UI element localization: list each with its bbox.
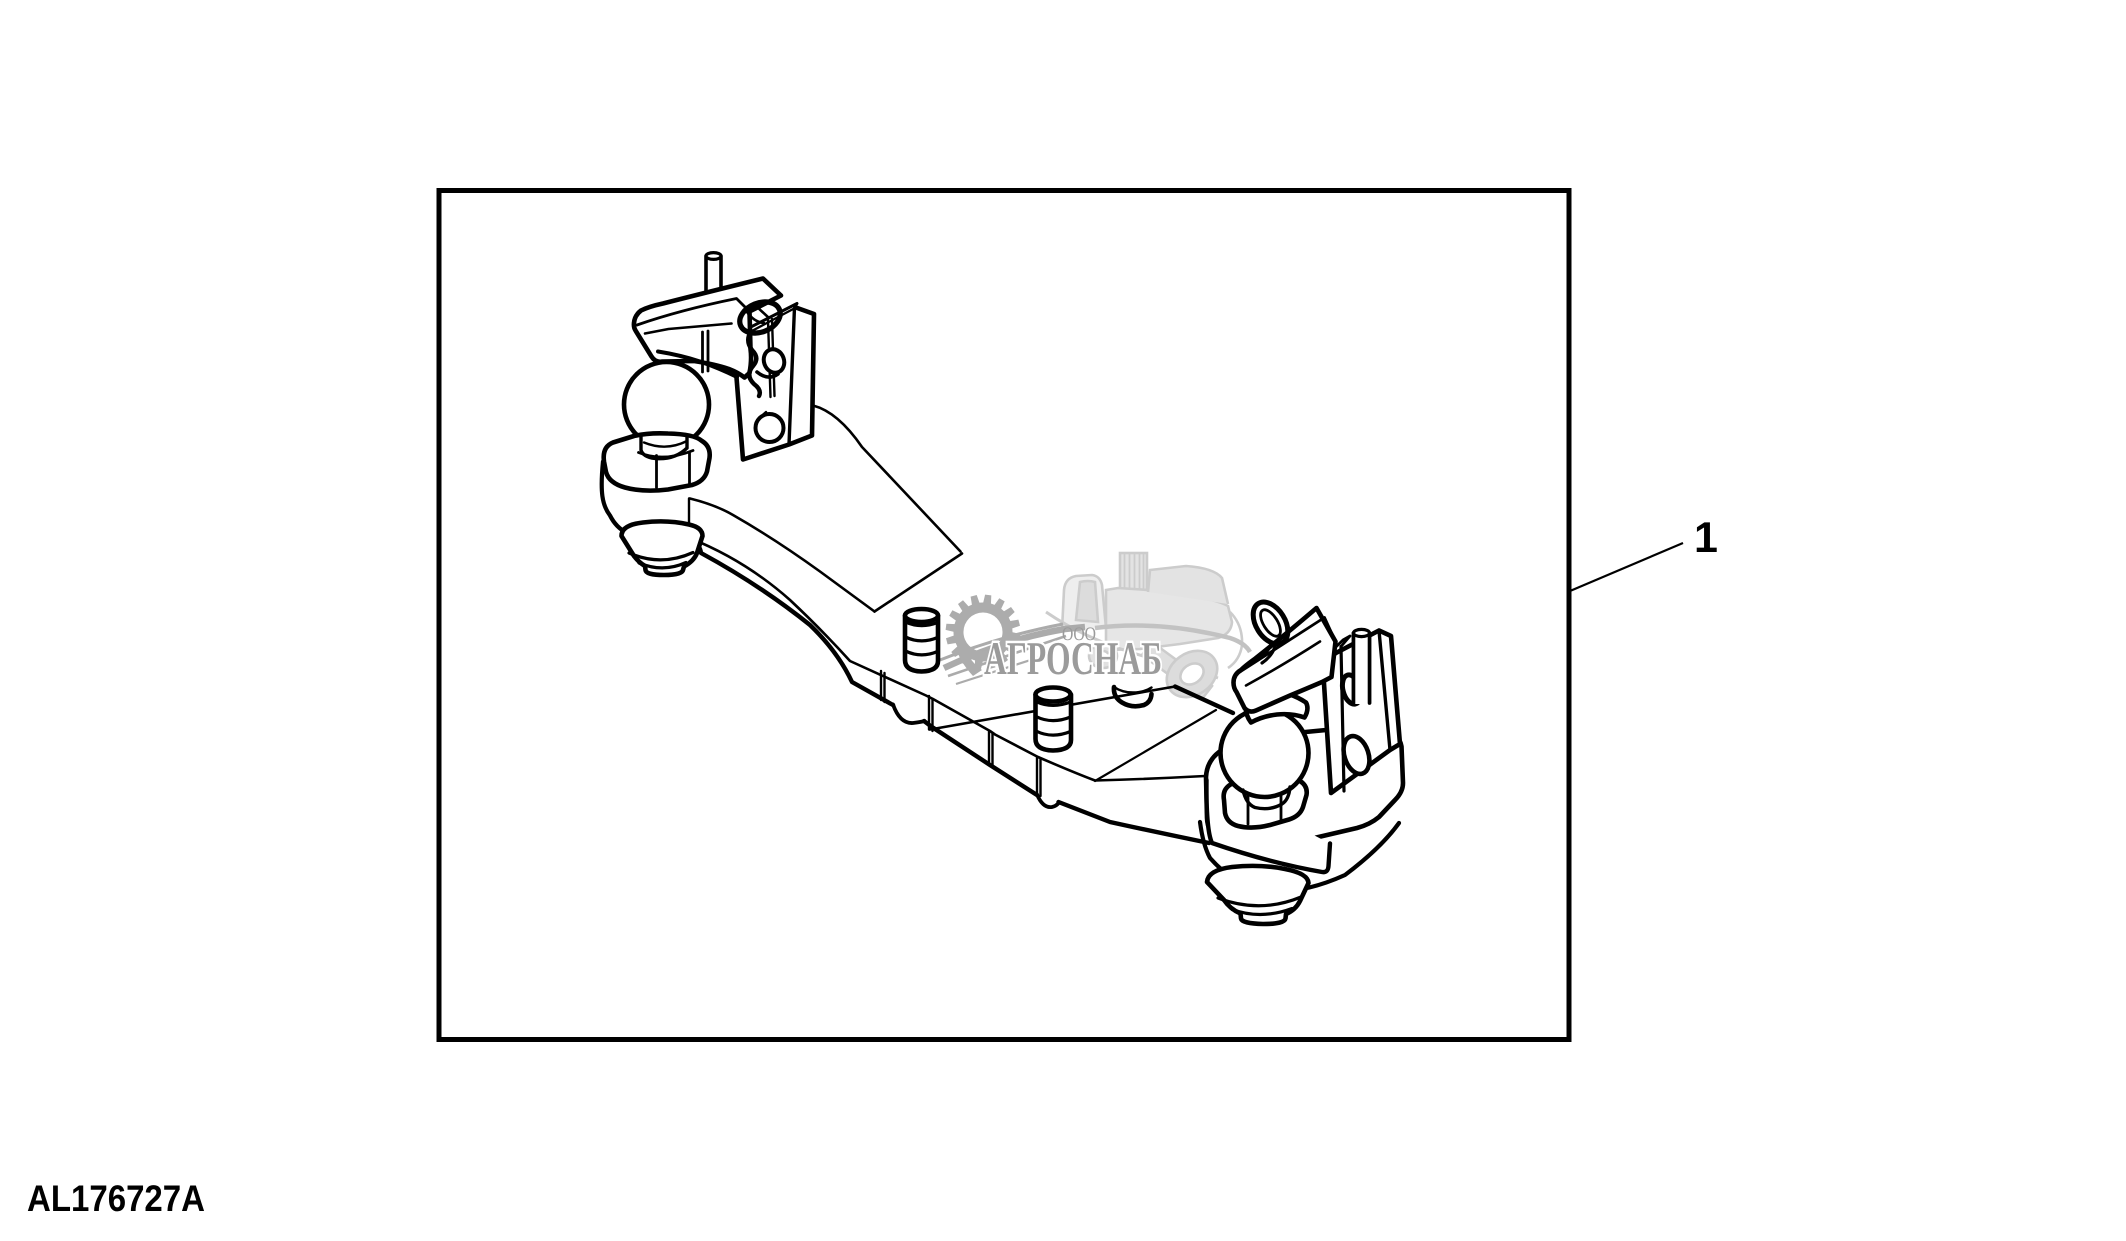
svg-text:AL176727A: AL176727A xyxy=(27,1178,205,1219)
svg-text:АГРОСНАБ: АГРОСНАБ xyxy=(984,633,1162,685)
svg-text:1: 1 xyxy=(1694,514,1718,562)
